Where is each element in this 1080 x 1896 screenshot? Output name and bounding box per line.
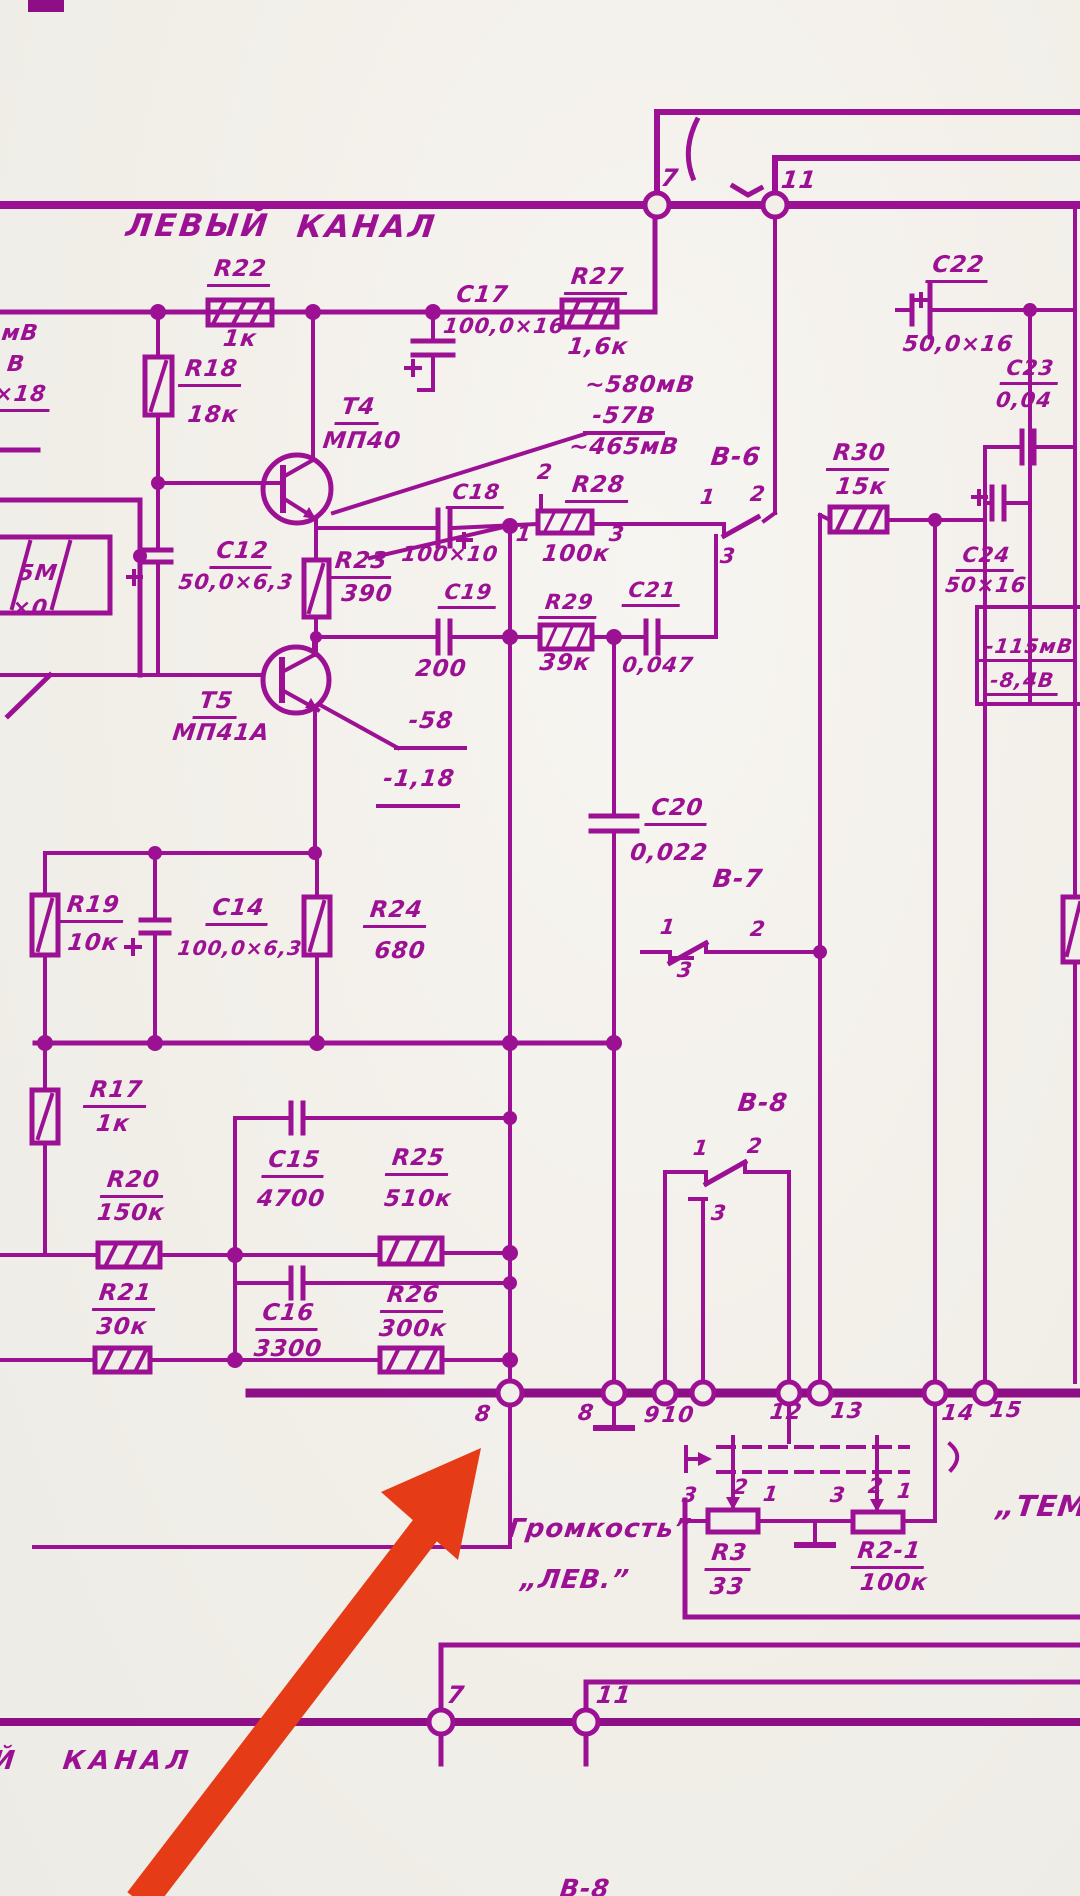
schematic-page: ЛЕВЫЙ КАНАЛ Громкость” „ЛЕВ.” „ТЕМ КАНАЛ… bbox=[0, 0, 1080, 1896]
annotation-arrow bbox=[0, 0, 1080, 1896]
